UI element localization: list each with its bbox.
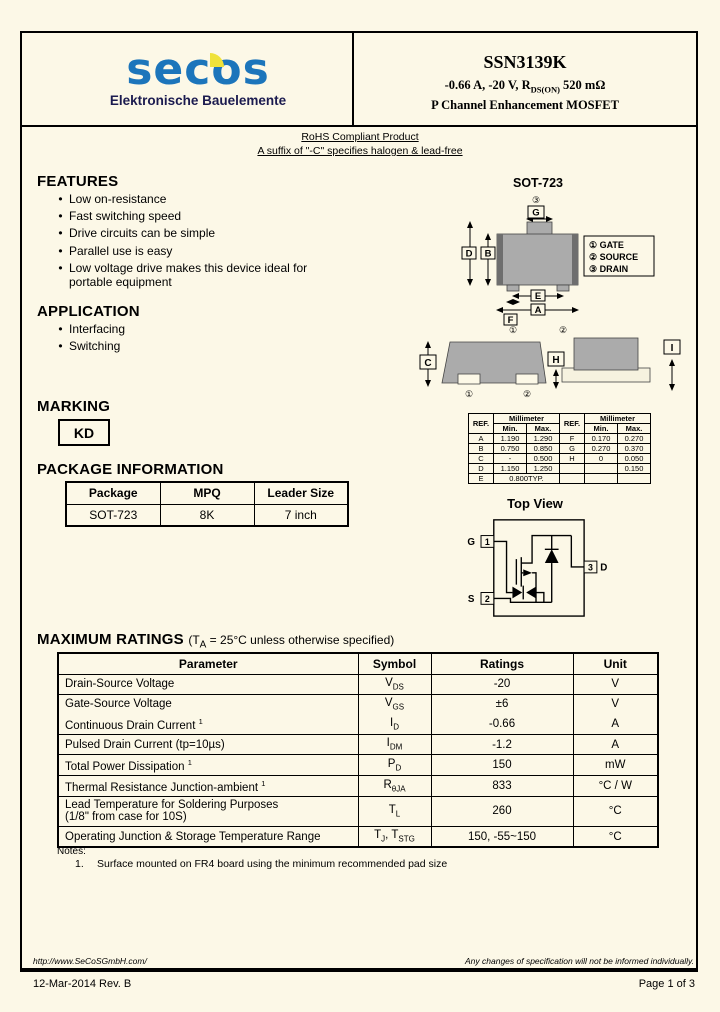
pkg-header-cell: Package xyxy=(66,482,160,504)
header-bottom-rule xyxy=(20,125,698,127)
spec-line: -0.66 A, -20 V, RDS(ON) 520 mΩ xyxy=(354,78,696,95)
bullet-dot-icon: • xyxy=(52,209,69,223)
rating-cell: 150, -55~150 xyxy=(431,826,573,847)
gate-pin-label: G xyxy=(467,537,475,548)
dim-cell: 1.190 xyxy=(494,434,527,444)
bullet-text: Low on-resistance xyxy=(69,192,166,206)
ratings-row: Gate-Source VoltageVGS±6V xyxy=(58,694,658,714)
bullet-item: •Parallel use is easy xyxy=(52,244,362,258)
ratings-header-cell: Ratings xyxy=(431,653,573,674)
rating-cell: ±6 xyxy=(431,694,573,714)
bullet-item: •Switching xyxy=(52,339,362,353)
dim-row: D1.1501.2500.150 xyxy=(469,464,651,474)
pkg-cell: SOT-723 xyxy=(66,504,160,526)
dim-cell: 0 xyxy=(585,454,618,464)
unit-cell: °C xyxy=(573,796,658,826)
dim-label-C: C xyxy=(424,358,431,369)
note-number: 1. xyxy=(75,858,97,870)
dim-header-cell: Max. xyxy=(527,424,560,434)
bullet-dot-icon: • xyxy=(52,244,69,258)
unit-cell: °C / W xyxy=(573,776,658,797)
device-type: P Channel Enhancement MOSFET xyxy=(354,98,696,113)
dim-cell: E xyxy=(469,474,494,484)
dim-cell xyxy=(560,474,585,484)
symbol-cell: VDS xyxy=(358,674,431,694)
dim-label-A: A xyxy=(535,305,542,316)
footer-url: http://www.SeCoSGmbH.com/ xyxy=(33,956,147,966)
bullet-text: Switching xyxy=(69,339,120,353)
dim-cell: 1.250 xyxy=(527,464,560,474)
features-list: •Low on-resistance•Fast switching speed•… xyxy=(52,192,362,292)
pkg-cell: 7 inch xyxy=(254,504,348,526)
dim-cell: 0.150 xyxy=(618,464,651,474)
rating-cell: 260 xyxy=(431,796,573,826)
max-ratings-condition: (TA = 25°C unless otherwise specified) xyxy=(188,633,394,647)
dim-cell: G xyxy=(560,444,585,454)
ratings-table-wrap: ParameterSymbolRatingsUnitDrain-Source V… xyxy=(57,652,659,848)
note-text: Surface mounted on FR4 board using the m… xyxy=(97,858,447,870)
package-name: SOT-723 xyxy=(428,176,648,190)
halogen-line: A suffix of "-C" specifies halogen & lea… xyxy=(22,144,698,158)
footer-page-number: Page 1 of 3 xyxy=(639,978,695,990)
parameter-cell: Lead Temperature for Soldering Purposes … xyxy=(58,796,358,826)
dim-header-cell: Millimeter xyxy=(585,414,651,424)
parameter-cell: Continuous Drain Current 1 xyxy=(58,714,358,734)
parameter-cell: Drain-Source Voltage xyxy=(58,674,358,694)
bullet-text: Low voltage drive makes this device idea… xyxy=(69,261,307,289)
pin2-number: ② xyxy=(559,325,567,335)
max-ratings-heading: MAXIMUM RATINGS (TA = 25°C unless otherw… xyxy=(37,631,394,650)
dim-cell xyxy=(560,464,585,474)
package-info-wrap: PackageMPQLeader SizeSOT-7238K7 inch xyxy=(65,481,349,527)
bullet-item: •Drive circuits can be simple xyxy=(52,226,362,240)
symbol-cell: TL xyxy=(358,796,431,826)
bullet-text: Parallel use is easy xyxy=(69,244,172,258)
dim-row: B0.7500.850G0.2700.370 xyxy=(469,444,651,454)
brand-tagline: Elektronische Bauelemente xyxy=(100,93,296,108)
pin1-box-label: 1 xyxy=(485,537,490,547)
part-number: SSN3139K xyxy=(354,52,696,73)
symbol-cell: ID xyxy=(358,714,431,734)
footer-date-rev: 12-Mar-2014 Rev. B xyxy=(33,978,131,990)
dim-cell: C xyxy=(469,454,494,464)
schematic-drawing: G 1 S 2 D 3 xyxy=(460,512,612,625)
dim-cell: 0.850 xyxy=(527,444,560,454)
pkg-cell: 8K xyxy=(160,504,254,526)
bullet-dot-icon: • xyxy=(52,226,69,240)
dim-cell xyxy=(585,464,618,474)
package-info-table: PackageMPQLeader SizeSOT-7238K7 inch xyxy=(65,481,349,527)
rating-cell: 833 xyxy=(431,776,573,797)
unit-cell: A xyxy=(573,714,658,734)
marking-code: KD xyxy=(58,419,110,446)
package-drawing: ③ G D B ① GATE ② SOURCE ③ DRAIN xyxy=(412,190,692,407)
bullet-dot-icon: • xyxy=(52,322,69,336)
dim-cell: 0.370 xyxy=(618,444,651,454)
notes-list: 1.Surface mounted on FR4 board using the… xyxy=(57,858,447,870)
dim-label-E: E xyxy=(535,291,541,302)
dim-header-cell: Min. xyxy=(494,424,527,434)
dim-cell: D xyxy=(469,464,494,474)
marking-title: MARKING xyxy=(37,398,110,415)
bullet-item: •Fast switching speed xyxy=(52,209,362,223)
symbol-cell: RθJA xyxy=(358,776,431,797)
pin3-number: ③ xyxy=(532,195,540,205)
dim-label-D: D xyxy=(466,249,473,260)
dim-cell: 1.290 xyxy=(527,434,560,444)
package-info-title: PACKAGE INFORMATION xyxy=(37,461,224,478)
symbol-cell: VGS xyxy=(358,694,431,714)
ratings-row: Total Power Dissipation 1PD150mW xyxy=(58,755,658,776)
pin3-box-label: 3 xyxy=(588,562,593,572)
unit-cell: V xyxy=(573,674,658,694)
ratings-table: ParameterSymbolRatingsUnitDrain-Source V… xyxy=(57,652,659,848)
dim-label-I: I xyxy=(671,343,674,354)
ratings-header-cell: Symbol xyxy=(358,653,431,674)
ratings-row: Operating Junction & Storage Temperature… xyxy=(58,826,658,847)
dim-label-B: B xyxy=(485,249,492,260)
unit-cell: mW xyxy=(573,755,658,776)
legend-gate: ① GATE xyxy=(589,240,624,250)
dim-cell: - xyxy=(494,454,527,464)
max-ratings-title: MAXIMUM RATINGS xyxy=(37,631,184,648)
features-title: FEATURES xyxy=(37,173,118,190)
dim-cell: 0.050 xyxy=(618,454,651,464)
unit-cell: °C xyxy=(573,826,658,847)
dim-header-cell: Min. xyxy=(585,424,618,434)
drain-pin-label: D xyxy=(600,562,607,573)
dim-header-cell: Millimeter xyxy=(494,414,560,424)
rating-cell: 150 xyxy=(431,755,573,776)
bullet-item: •Low voltage drive makes this device ide… xyxy=(52,261,362,289)
parameter-cell: Thermal Resistance Junction-ambient 1 xyxy=(58,776,358,797)
dim-cell: B xyxy=(469,444,494,454)
dim-row: C-0.500H00.050 xyxy=(469,454,651,464)
parameter-cell: Gate-Source Voltage xyxy=(58,694,358,714)
symbol-cell: PD xyxy=(358,755,431,776)
ratings-header-cell: Unit xyxy=(573,653,658,674)
dim-cell: F xyxy=(560,434,585,444)
application-title: APPLICATION xyxy=(37,303,140,320)
rating-cell: -0.66 xyxy=(431,714,573,734)
dim-cell xyxy=(585,474,618,484)
dimension-table: REF.MillimeterREF.MillimeterMin.Max.Min.… xyxy=(468,413,651,484)
legend-source: ② SOURCE xyxy=(589,252,638,262)
bullet-dot-icon: • xyxy=(52,339,69,353)
dim-cell: 0.270 xyxy=(618,434,651,444)
ratings-row: Drain-Source VoltageVDS-20V xyxy=(58,674,658,694)
legend-drain: ③ DRAIN xyxy=(589,264,628,274)
brand-wordmark: secos xyxy=(126,48,270,92)
note-item: 1.Surface mounted on FR4 board using the… xyxy=(57,858,447,870)
brand-text: secos xyxy=(126,44,270,95)
dim-cell: H xyxy=(560,454,585,464)
parameter-cell: Pulsed Drain Current (tp=10µs) xyxy=(58,734,358,754)
parameter-cell: Operating Junction & Storage Temperature… xyxy=(58,826,358,847)
bullet-text: Drive circuits can be simple xyxy=(69,226,215,240)
pkg-header-cell: MPQ xyxy=(160,482,254,504)
dim-cell: 0.750 xyxy=(494,444,527,454)
dim-cell: A xyxy=(469,434,494,444)
bullet-text: Fast switching speed xyxy=(69,209,181,223)
ratings-row: Pulsed Drain Current (tp=10µs)IDM-1.2A xyxy=(58,734,658,754)
pin2-box-label: 2 xyxy=(485,594,490,604)
package-side-view-right: H I xyxy=(548,338,680,390)
dim-header-cell: REF. xyxy=(469,414,494,434)
bullet-dot-icon: • xyxy=(52,192,69,206)
rating-cell: -20 xyxy=(431,674,573,694)
dim-label-G: G xyxy=(532,208,539,219)
ratings-header-cell: Parameter xyxy=(58,653,358,674)
brand-logo: secos Elektronische Bauelemente xyxy=(100,48,296,108)
dim-row: E0.800TYP. xyxy=(469,474,651,484)
rohs-line: RoHS Compliant Product xyxy=(22,130,698,144)
footer-disclaimer: Any changes of specification will not be… xyxy=(465,956,694,966)
dim-cell: 0.500 xyxy=(527,454,560,464)
package-top-view: ③ G D B ① GATE ② SOURCE ③ DRAIN xyxy=(462,195,654,335)
compliance-block: RoHS Compliant Product A suffix of "-C" … xyxy=(22,130,698,158)
unit-cell: A xyxy=(573,734,658,754)
dim-header-cell: REF. xyxy=(560,414,585,434)
dim-header-cell: Max. xyxy=(618,424,651,434)
bullet-dot-icon: • xyxy=(52,261,69,289)
source-pin-label: S xyxy=(468,594,475,605)
dim-cell: 0.800TYP. xyxy=(494,474,560,484)
dim-cell: 0.270 xyxy=(585,444,618,454)
ratings-row: Thermal Resistance Junction-ambient 1RθJ… xyxy=(58,776,658,797)
unit-cell: V xyxy=(573,694,658,714)
symbol-cell: IDM xyxy=(358,734,431,754)
parameter-cell: Total Power Dissipation 1 xyxy=(58,755,358,776)
dim-cell: 0.170 xyxy=(585,434,618,444)
package-side-view-left: C ① ② xyxy=(420,342,546,399)
ratings-row: Continuous Drain Current 1ID-0.66A xyxy=(58,714,658,734)
pin1-number: ① xyxy=(509,325,517,335)
pkg-row: SOT-7238K7 inch xyxy=(66,504,348,526)
dim-row: A1.1901.290F0.1700.270 xyxy=(469,434,651,444)
ratings-row: Lead Temperature for Soldering Purposes … xyxy=(58,796,658,826)
application-list: •Interfacing•Switching xyxy=(52,322,362,356)
dim-cell xyxy=(618,474,651,484)
side-pin2-number: ② xyxy=(523,389,531,399)
bullet-item: •Interfacing xyxy=(52,322,362,336)
bullet-item: •Low on-resistance xyxy=(52,192,362,206)
title-block: SSN3139K -0.66 A, -20 V, RDS(ON) 520 mΩ … xyxy=(354,52,696,113)
schematic-title: Top View xyxy=(460,496,610,511)
dimension-table-wrap: REF.MillimeterREF.MillimeterMin.Max.Min.… xyxy=(468,413,651,484)
side-pin1-number: ① xyxy=(465,389,473,399)
bullet-text: Interfacing xyxy=(69,322,125,336)
pkg-header-cell: Leader Size xyxy=(254,482,348,504)
dim-cell: 1.150 xyxy=(494,464,527,474)
datasheet-page: secos Elektronische Bauelemente SSN3139K… xyxy=(0,0,720,1012)
notes-label: Notes: xyxy=(57,846,86,857)
dim-label-H: H xyxy=(552,355,559,366)
rating-cell: -1.2 xyxy=(431,734,573,754)
symbol-cell: TJ, TSTG xyxy=(358,826,431,847)
